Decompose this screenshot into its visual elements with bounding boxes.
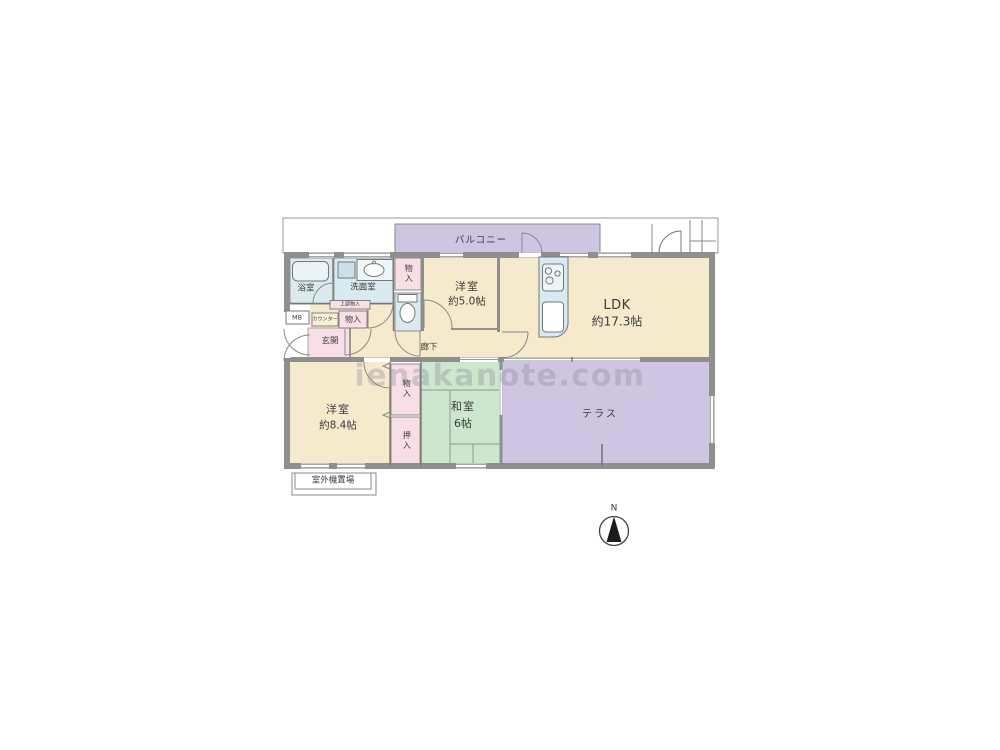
kitchen-counter-icon bbox=[539, 257, 568, 337]
vanity-sink-icon bbox=[357, 260, 393, 281]
upper-closet-label: 上部物入 bbox=[340, 302, 360, 307]
bath-label: 浴室 bbox=[297, 285, 314, 294]
watermark: ienakanote.com bbox=[354, 359, 645, 394]
compass-north-label: N bbox=[611, 504, 618, 513]
entrance-label: 玄関 bbox=[321, 338, 338, 347]
western-room-small-size: 約5.0帖 bbox=[448, 296, 486, 307]
terrace-label: テラス bbox=[582, 410, 618, 421]
meter-box-label: MB bbox=[292, 314, 302, 321]
washroom-label: 洗面室 bbox=[350, 284, 376, 293]
counter-label: カウンター bbox=[312, 317, 337, 322]
western-room-small-area bbox=[424, 258, 498, 330]
ldk-name: LDK bbox=[603, 299, 630, 313]
closet-top-label: 物入 bbox=[404, 264, 412, 284]
hallway-label: 廊下 bbox=[420, 344, 437, 353]
outdoor-unit-label: 室外機置場 bbox=[312, 477, 355, 486]
compass bbox=[600, 517, 629, 546]
japanese-room-name: 和室 bbox=[451, 401, 475, 413]
western-room-large-name: 洋室 bbox=[326, 404, 350, 416]
bathtub-icon bbox=[293, 262, 329, 282]
japanese-room-size: 6帖 bbox=[454, 418, 472, 430]
western-room-large-size: 約8.4帖 bbox=[319, 420, 357, 431]
balcony-label: バルコニー bbox=[455, 236, 507, 246]
closet-lower-label: 物入 bbox=[402, 379, 410, 399]
compass-needle bbox=[607, 517, 622, 543]
toilet-icon bbox=[398, 295, 417, 323]
entry-closet-label: 物入 bbox=[345, 315, 361, 323]
oshiire-label: 押入 bbox=[402, 431, 410, 451]
floor-plan-page: バルコニー 浴室 洗面室 物入 洋室 約5.0帖 LDK 約17.3帖 MB 上… bbox=[0, 0, 1000, 750]
ldk-size: 約17.3帖 bbox=[592, 316, 643, 329]
washing-machine-icon bbox=[338, 262, 355, 278]
western-room-small-name: 洋室 bbox=[455, 281, 479, 293]
